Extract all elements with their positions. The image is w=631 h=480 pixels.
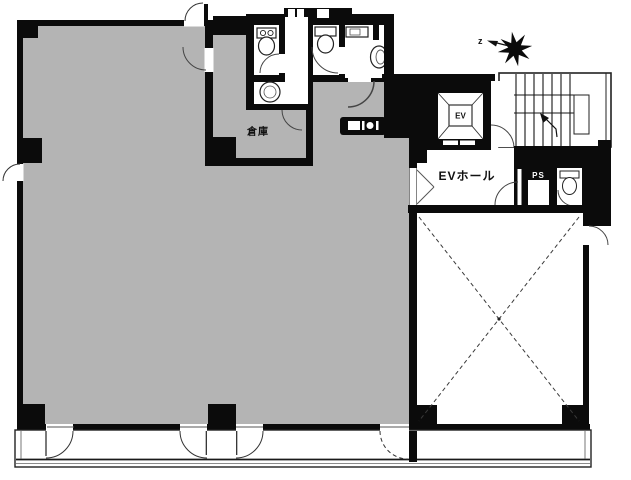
svg-text:EV: EV [455,112,466,121]
svg-text:PS: PS [532,171,545,180]
svg-text:EVホール: EVホール [438,169,495,183]
svg-text:z: z [478,36,483,46]
svg-text:倉庫: 倉庫 [246,125,269,138]
